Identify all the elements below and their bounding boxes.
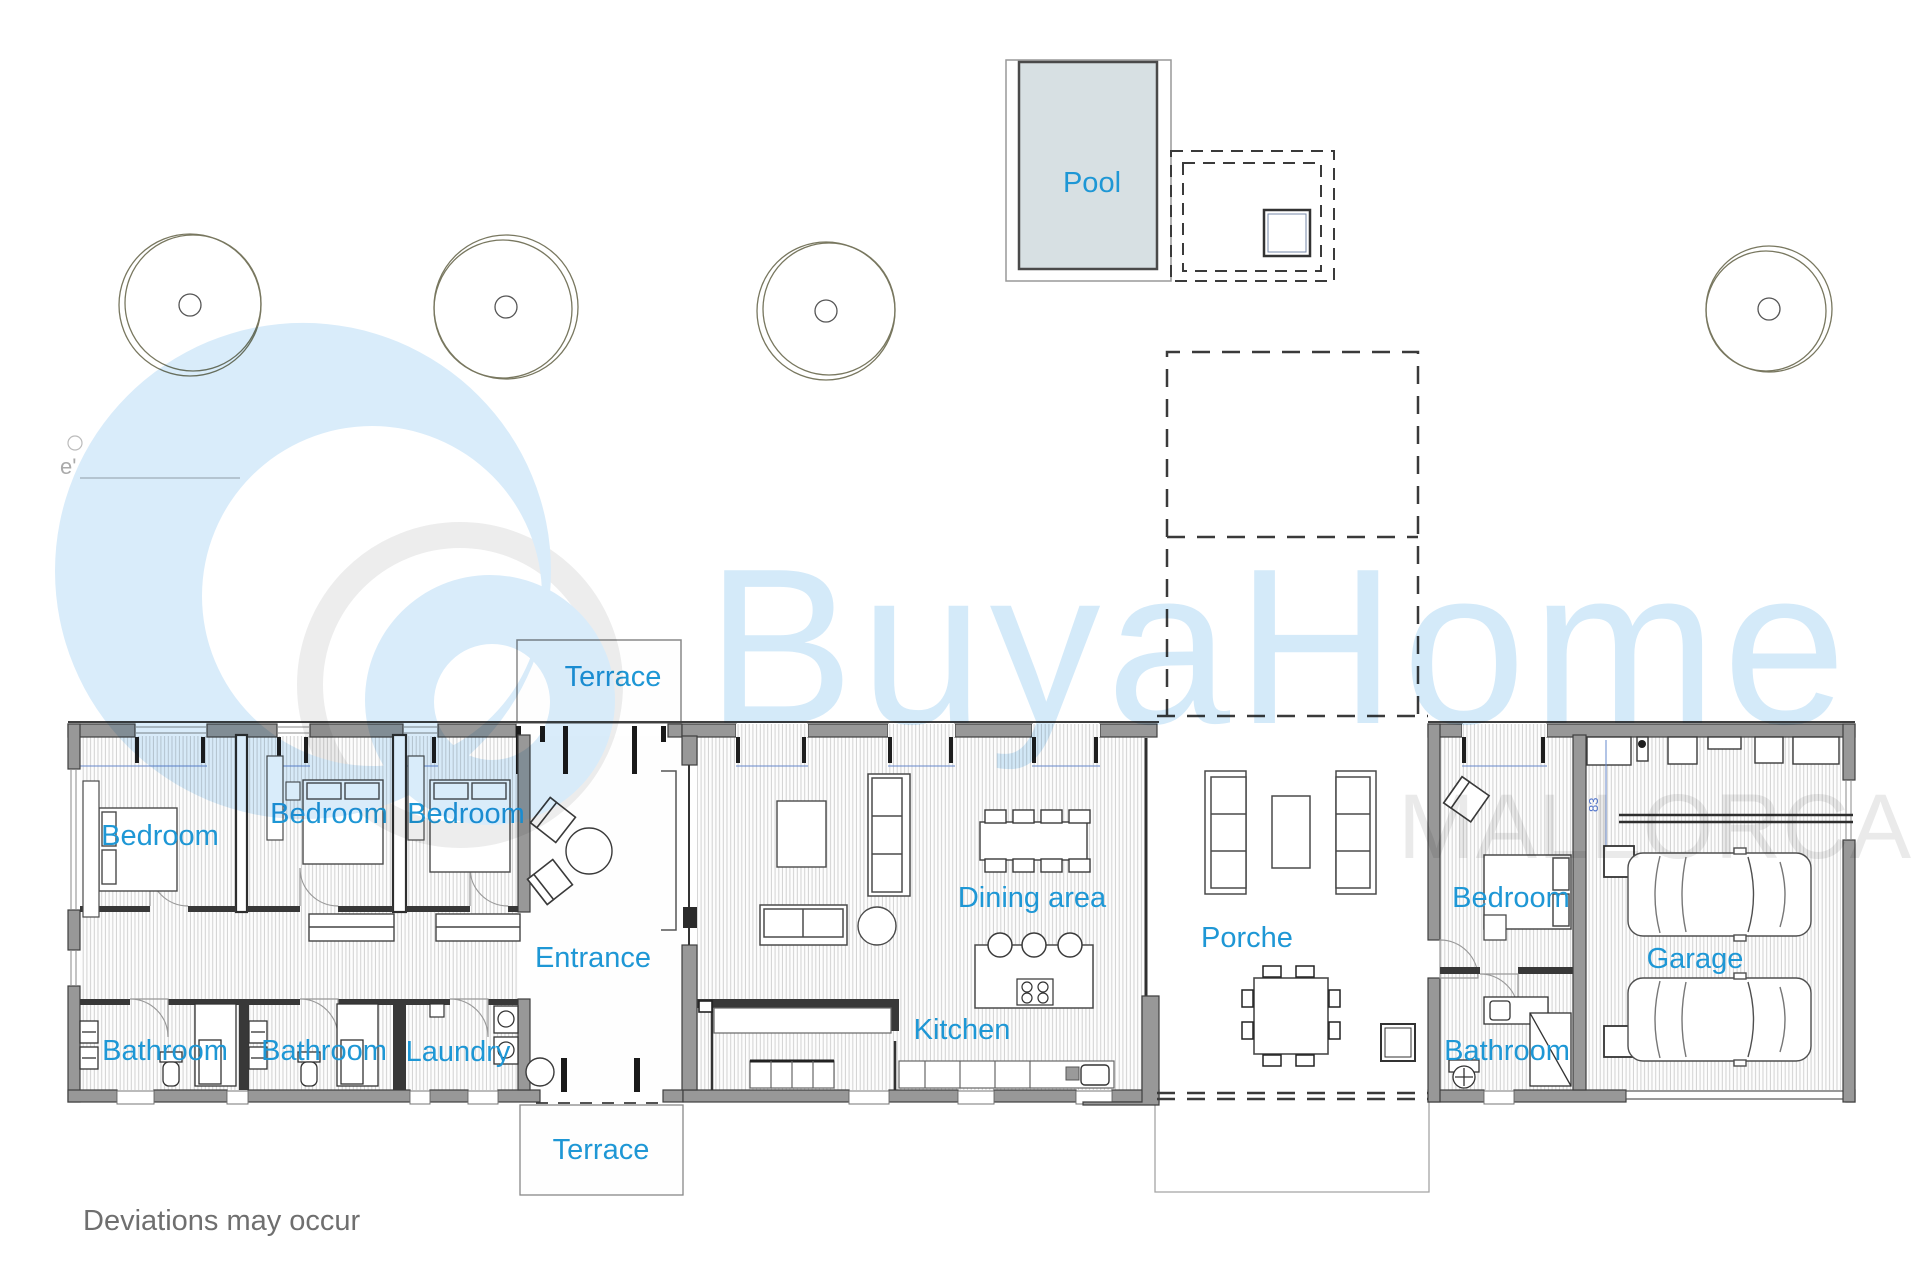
svg-text:Bathroom: Bathroom [1444,1035,1570,1067]
svg-text:Terrace: Terrace [553,1134,650,1166]
svg-text:Deviations may occur: Deviations may occur [83,1205,361,1237]
svg-text:MALLORCA: MALLORCA [1398,776,1912,878]
svg-text:Dining area: Dining area [958,882,1107,914]
svg-text:BuyaHome: BuyaHome [706,523,1852,771]
svg-text:Kitchen: Kitchen [914,1014,1011,1046]
svg-text:Bathroom: Bathroom [261,1035,387,1067]
svg-text:Entrance: Entrance [535,942,651,974]
svg-text:Garage: Garage [1647,943,1744,975]
svg-text:e': e' [60,454,76,479]
svg-text:Pool: Pool [1063,167,1121,199]
svg-text:Bedroom: Bedroom [101,820,219,852]
svg-text:Porche: Porche [1201,922,1293,954]
svg-text:Laundry: Laundry [406,1036,511,1068]
svg-text:Bedroom: Bedroom [1452,882,1570,914]
svg-text:Bathroom: Bathroom [102,1035,228,1067]
